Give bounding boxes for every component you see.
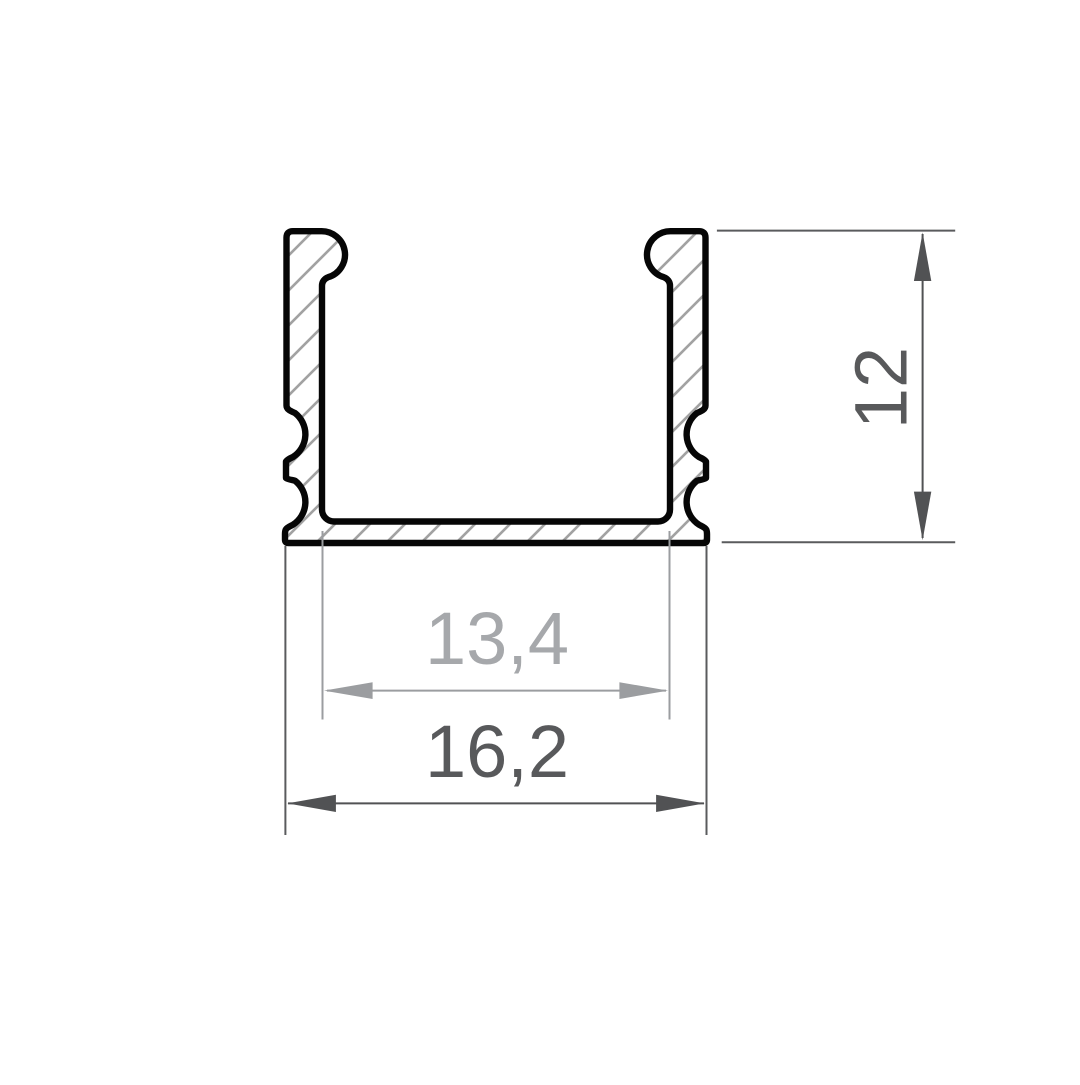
svg-text:13,4: 13,4 [425,597,569,680]
svg-text:12: 12 [840,347,923,429]
svg-text:16,2: 16,2 [425,710,569,793]
